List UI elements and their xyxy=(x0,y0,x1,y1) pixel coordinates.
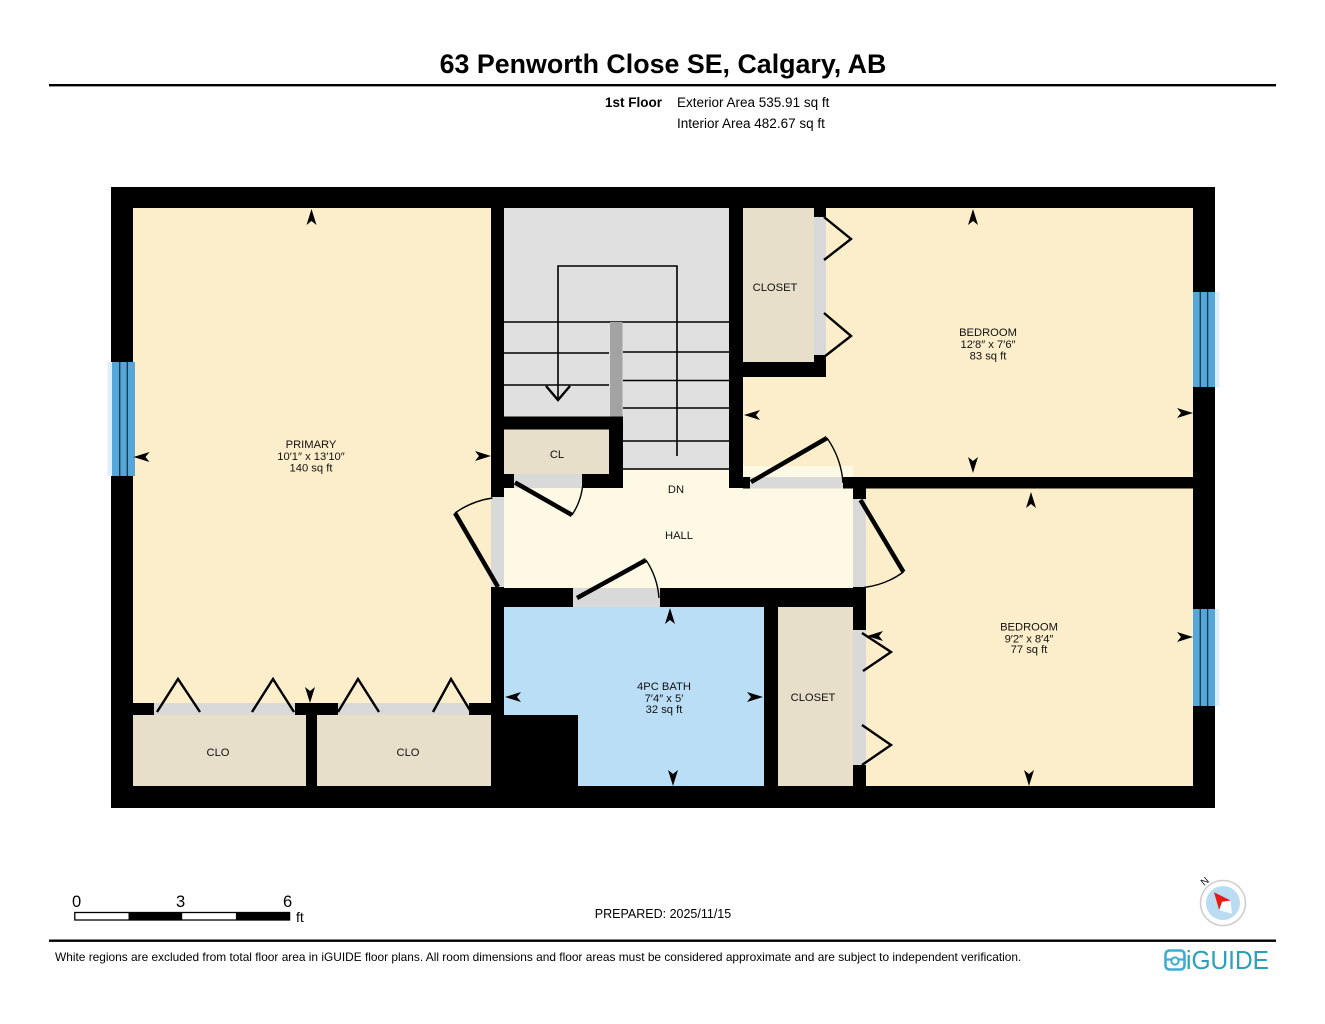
svg-text:6: 6 xyxy=(283,893,292,911)
svg-text:83 sq ft: 83 sq ft xyxy=(970,351,1008,363)
svg-text:10′1″ x 13′10″: 10′1″ x 13′10″ xyxy=(277,451,345,463)
svg-text:PRIMARY: PRIMARY xyxy=(286,439,337,451)
svg-text:DN: DN xyxy=(668,484,684,496)
svg-text:3: 3 xyxy=(176,893,185,911)
svg-text:CLOSET: CLOSET xyxy=(791,692,836,704)
svg-text:1st Floor: 1st Floor xyxy=(605,95,663,110)
svg-text:White regions are excluded fro: White regions are excluded from total fl… xyxy=(55,950,1021,964)
svg-text:BEDROOM: BEDROOM xyxy=(1000,622,1058,634)
svg-text:63 Penworth Close SE, Calgary,: 63 Penworth Close SE, Calgary, AB xyxy=(440,49,887,79)
svg-text:BEDROOM: BEDROOM xyxy=(959,327,1017,339)
svg-text:HALL: HALL xyxy=(665,530,693,542)
svg-text:CLOSET: CLOSET xyxy=(753,282,798,294)
svg-text:CLO: CLO xyxy=(396,747,419,759)
svg-text:CL: CL xyxy=(550,449,564,461)
svg-text:32 sq ft: 32 sq ft xyxy=(646,704,684,716)
svg-text:Exterior Area 535.91 sq ft: Exterior Area 535.91 sq ft xyxy=(677,95,830,110)
svg-text:PREPARED: 2025/11/15: PREPARED: 2025/11/15 xyxy=(595,907,731,921)
svg-text:12′8″ x 7′6″: 12′8″ x 7′6″ xyxy=(960,339,1015,351)
svg-text:77 sq ft: 77 sq ft xyxy=(1011,644,1049,656)
svg-text:iGUIDE: iGUIDE xyxy=(1186,947,1269,975)
svg-text:Interior Area 482.67 sq ft: Interior Area 482.67 sq ft xyxy=(677,116,825,131)
svg-text:7′4″ x 5′: 7′4″ x 5′ xyxy=(645,693,684,705)
svg-text:0: 0 xyxy=(72,893,81,911)
svg-text:4PC BATH: 4PC BATH xyxy=(637,681,691,693)
svg-text:CLO: CLO xyxy=(206,747,229,759)
svg-text:140 sq ft: 140 sq ft xyxy=(290,463,334,475)
svg-text:ft: ft xyxy=(296,909,304,925)
